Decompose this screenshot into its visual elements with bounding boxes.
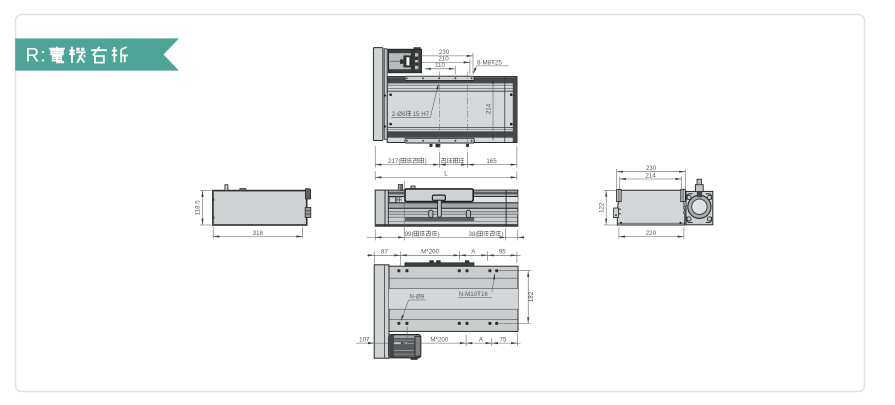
svg-text:): ) — [438, 231, 440, 238]
svg-text:L: L — [444, 171, 448, 178]
svg-text:217(: 217( — [388, 158, 401, 165]
svg-text:87: 87 — [381, 249, 388, 256]
svg-text:M*200: M*200 — [421, 249, 439, 256]
svg-text:2-Ø6: 2-Ø6 — [392, 111, 406, 118]
svg-text:118.5: 118.5 — [194, 200, 201, 216]
svg-text:95: 95 — [499, 249, 506, 256]
svg-text:R:: R: — [26, 45, 47, 66]
svg-text:318: 318 — [253, 230, 264, 237]
svg-text:99(: 99( — [405, 231, 415, 238]
svg-text:214: 214 — [645, 173, 656, 180]
svg-text:214: 214 — [485, 103, 492, 114]
svg-text:75: 75 — [500, 336, 507, 343]
svg-text:M*200: M*200 — [430, 336, 448, 343]
svg-text:): ) — [502, 231, 504, 238]
svg-text:15 H7: 15 H7 — [413, 111, 430, 118]
svg-text:N-Ø9: N-Ø9 — [409, 294, 424, 301]
svg-text:220: 220 — [646, 230, 657, 237]
svg-text:): ) — [425, 158, 427, 165]
svg-text:107: 107 — [359, 336, 370, 343]
svg-text:110: 110 — [435, 62, 445, 69]
svg-text:230: 230 — [646, 165, 657, 172]
svg-text:182: 182 — [528, 291, 535, 302]
svg-text:8-M8Ŧ25: 8-M8Ŧ25 — [477, 60, 502, 67]
svg-text:122: 122 — [598, 202, 605, 213]
svg-text:38(: 38( — [469, 231, 479, 238]
svg-text:N-M10Ŧ16: N-M10Ŧ16 — [459, 291, 489, 298]
svg-text:165: 165 — [486, 158, 497, 165]
